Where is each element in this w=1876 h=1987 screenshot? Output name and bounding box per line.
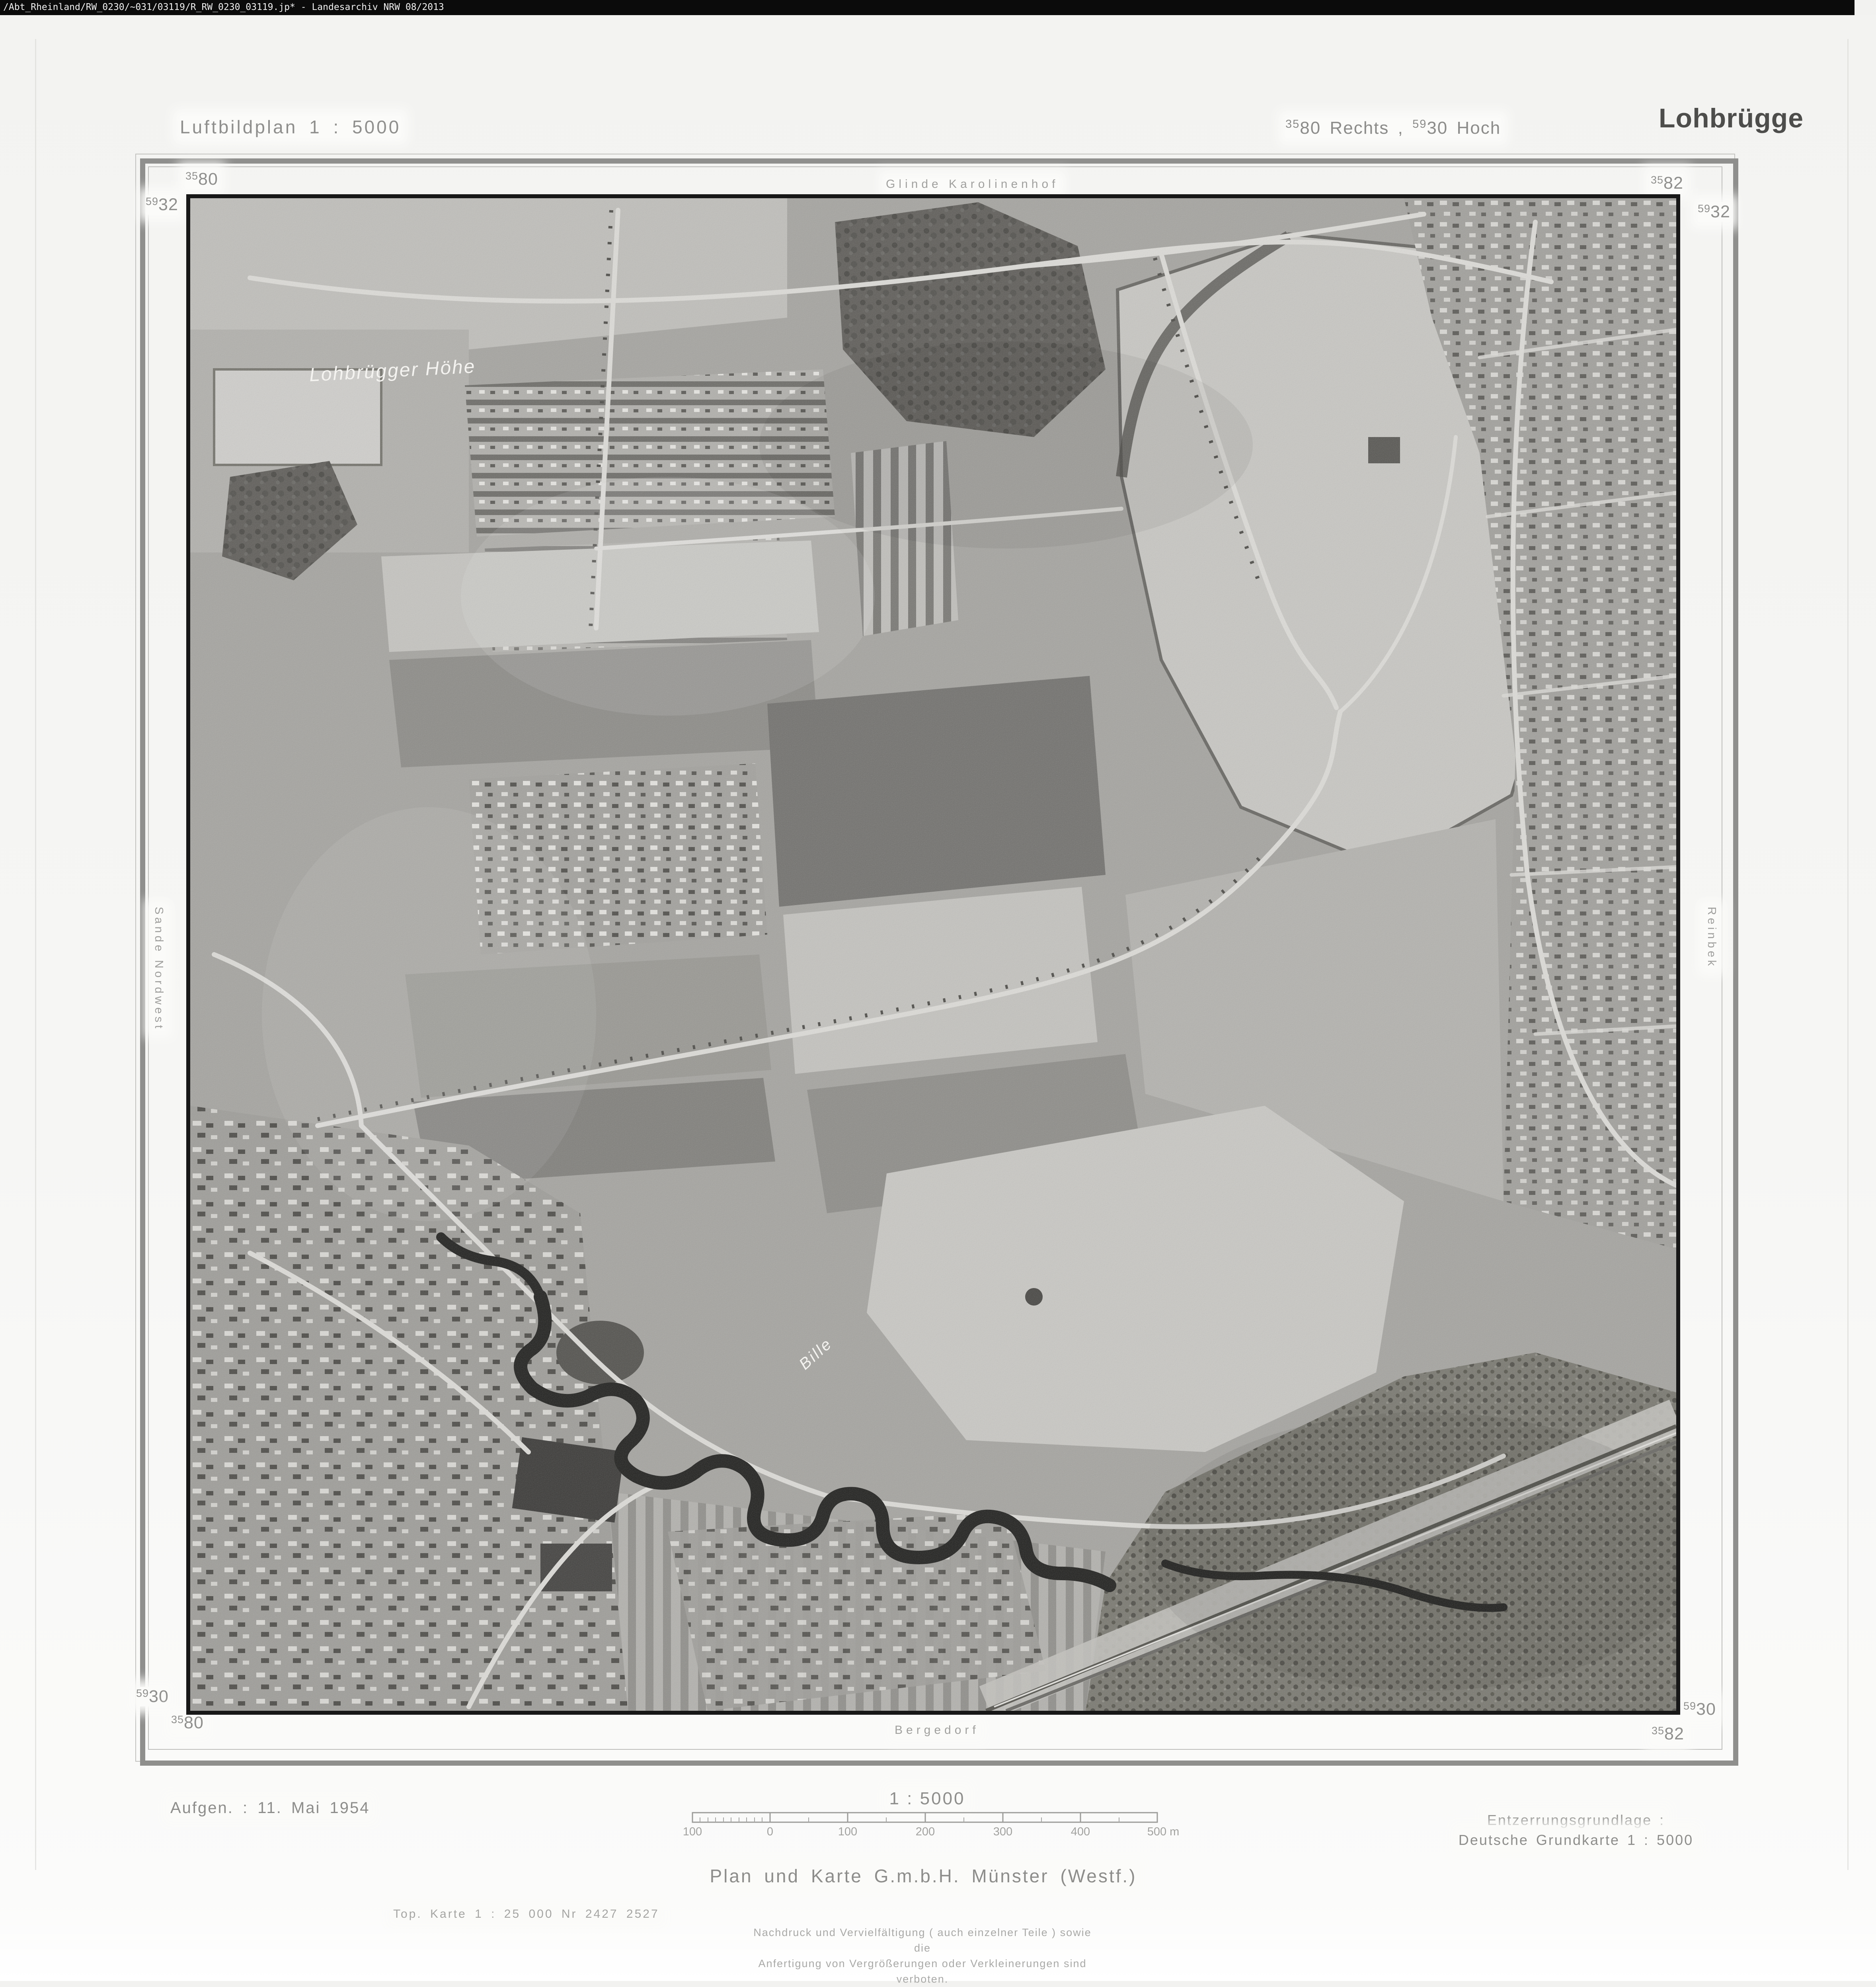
grid-label-bottom-left-northing: 5930 [136, 1687, 169, 1706]
viewer-title-bar: /Abt_Rheinland/RW_0230/~031/03119/R_RW_0… [0, 0, 1876, 15]
aerial-photo-canvas: Lohbrügger Höhe Bille [190, 198, 1676, 1711]
grid-label-top-right-northing: 5932 [1698, 202, 1730, 222]
sheet-edge-left [35, 39, 36, 1870]
grid-label-bottom-right-easting: 3582 [1652, 1724, 1684, 1744]
scale-ratio-label: 1 : 5000 [856, 1789, 999, 1809]
topographic-map-stamp: Top. Karte 1 : 25 000 Nr 2427 2527 [393, 1907, 659, 1921]
rectification-note: Entzerrungsgrundlage : Deutsche Grundkar… [1433, 1810, 1719, 1850]
sheet-name: Lohbrügge [1659, 103, 1804, 134]
margin-name-right: Reinbek [1705, 907, 1718, 968]
grid-ref-sup-north: 59 [1412, 118, 1427, 131]
scale-tick: 0 [767, 1825, 773, 1839]
scale-bar-labels: 100 0 100 200 300 400 500 m [692, 1825, 1157, 1841]
scale-tick: 500 m [1147, 1825, 1180, 1839]
grid-label-top-left-easting: 3580 [185, 170, 218, 189]
grid-ref-end: Hoch [1448, 118, 1501, 138]
viewer-file-path: /Abt_Rheinland/RW_0230/~031/03119/R_RW_0… [3, 2, 444, 12]
margin-name-left: Sande Nordwest [152, 907, 165, 1031]
scale-bar-graphic [692, 1811, 1185, 1827]
grid-label-top-left-northing: 5932 [146, 195, 178, 215]
grid-ref-mid: Rechts , [1321, 118, 1412, 138]
grid-reference-title: 3580 Rechts , 5930 Hoch [1285, 118, 1501, 138]
scale-tick: 100 [838, 1825, 857, 1839]
publisher-imprint: Plan und Karte G.m.b.H. Münster (Westf.) [684, 1865, 1162, 1887]
map-sheet: Luftbildplan 1 : 5000 3580 Rechts , 5930… [0, 15, 1876, 1981]
grid-label-bottom-right-northing: 5930 [1683, 1700, 1716, 1719]
scale-tick: 200 [916, 1825, 935, 1839]
scale-tick: 100 [683, 1825, 702, 1839]
grid-ref-sup-east: 35 [1285, 118, 1300, 131]
aerial-photo: Lohbrügger Höhe Bille [186, 194, 1680, 1715]
scale-tick: 400 [1071, 1825, 1090, 1839]
sheet-edge-right [1847, 39, 1849, 1870]
grid-ref-main-north: 30 [1427, 118, 1448, 138]
grid-ref-main-east: 80 [1300, 118, 1321, 138]
margin-name-top: Glinde Karolinenhof [886, 178, 1059, 191]
plan-scale-title: Luftbildplan 1 : 5000 [180, 116, 401, 138]
grid-label-bottom-left-easting: 3580 [171, 1713, 204, 1733]
scale-bar [692, 1811, 1185, 1827]
scale-tick: 300 [993, 1825, 1012, 1839]
survey-date-note: Aufgen. : 11. Mai 1954 [170, 1799, 370, 1817]
margin-name-bottom: Bergedorf [895, 1723, 979, 1737]
viewer-bar-notch [1855, 0, 1876, 15]
grid-label-top-right-easting: 3582 [1651, 174, 1683, 193]
copyright-note: Nachdruck und Vervielfältigung ( auch ei… [743, 1925, 1102, 1987]
photo-grain [190, 198, 1676, 1711]
